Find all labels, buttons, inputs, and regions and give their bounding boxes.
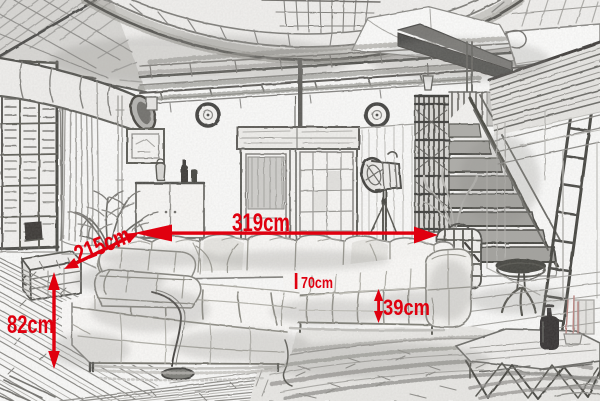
svg-text:82cm: 82cm <box>7 311 54 339</box>
svg-text:319cm: 319cm <box>232 209 290 237</box>
svg-text:39cm: 39cm <box>383 295 430 320</box>
svg-text:70cm: 70cm <box>301 275 333 292</box>
